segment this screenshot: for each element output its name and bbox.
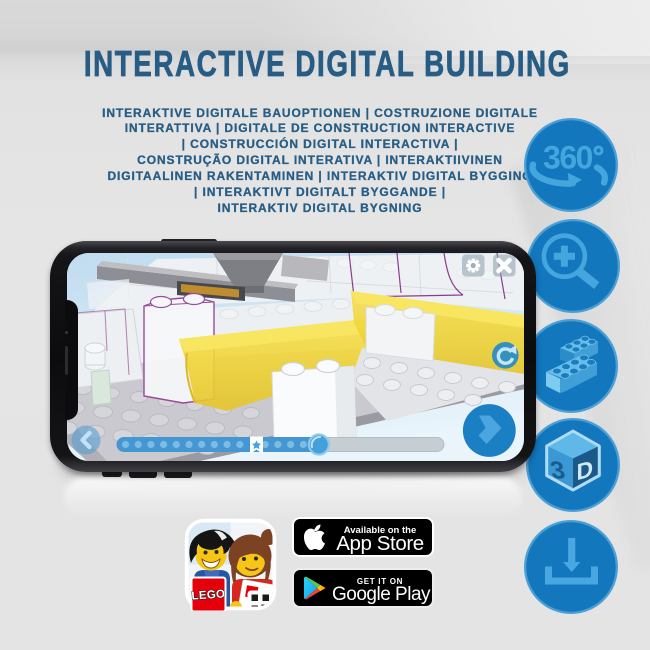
svg-text:LEGO: LEGO bbox=[191, 588, 226, 602]
svg-text:360: 360 bbox=[543, 140, 593, 176]
svg-text:D: D bbox=[577, 455, 594, 485]
